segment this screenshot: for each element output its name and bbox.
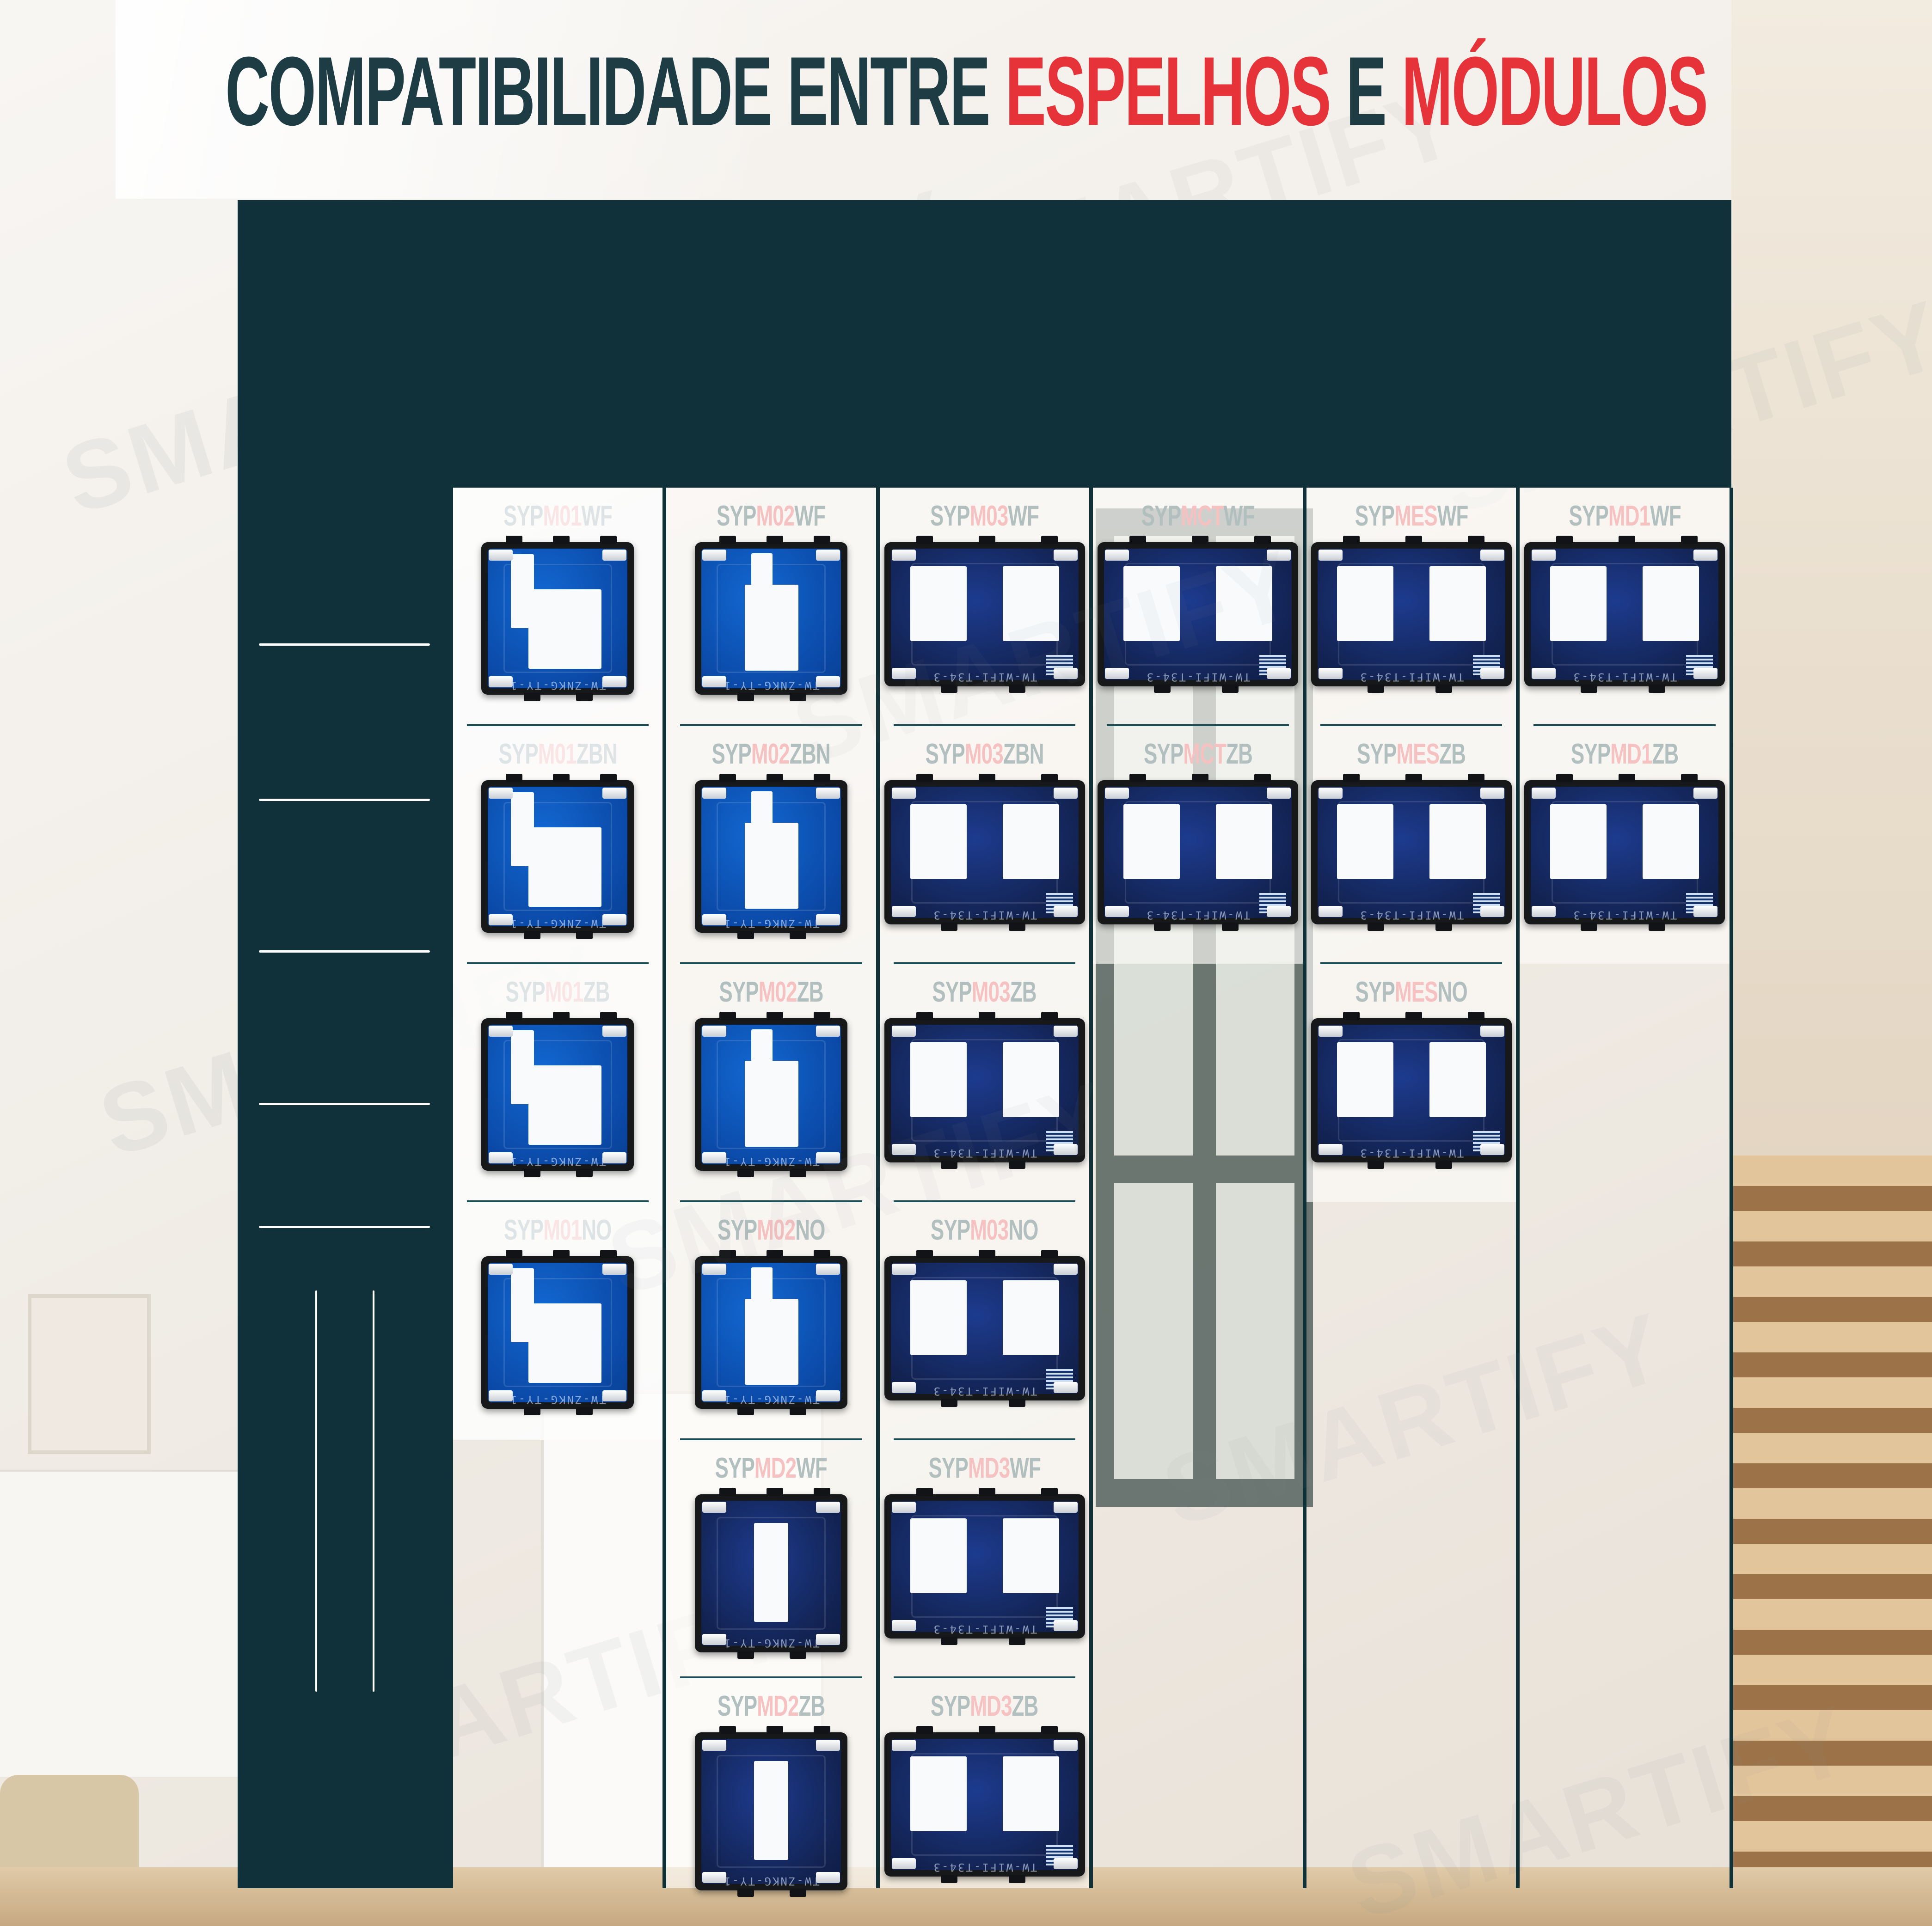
stair-step — [1731, 1266, 1932, 1322]
module-image-m1: TW-ZNKG-TY-1 — [481, 1256, 634, 1409]
stair-step — [1731, 1433, 1932, 1488]
title-part-red: ESPELHOS — [1005, 37, 1330, 146]
cell-separator — [467, 962, 649, 964]
cell-separator — [467, 724, 649, 726]
sidebar-panel — [238, 488, 451, 1888]
module-image-md2: TW-ZNKG-TY-1 — [695, 1732, 847, 1890]
cell-separator — [680, 962, 862, 964]
column-divider-line — [1730, 488, 1733, 1888]
page-title: COMPATIBILIDADE ENTRE ESPELHOS E MÓDULOS — [0, 50, 1932, 134]
grid-divider — [315, 1290, 317, 1692]
cell-separator — [467, 1200, 649, 1202]
column-divider-line — [1303, 488, 1306, 1888]
sidebar-separator — [259, 950, 430, 953]
module-image-m1: TW-ZNKG-TY-1 — [481, 780, 634, 933]
module-image-md2: TW-ZNKG-TY-1 — [695, 1494, 847, 1652]
module-image-wide: TW-WIFI-T34-3 — [1311, 1018, 1512, 1162]
grid-divider — [373, 1290, 374, 1692]
module-image-wide: TW-WIFI-T34-3 — [1098, 780, 1298, 924]
stair-step — [1731, 1599, 1932, 1655]
stair-step — [1731, 1377, 1932, 1433]
module-image-wide: TW-WIFI-T34-3 — [1524, 780, 1725, 924]
background-cabinet — [0, 1470, 238, 1777]
title-part-red2: MÓDULOS — [1401, 37, 1707, 146]
cell-separator — [680, 1676, 862, 1678]
module-image-wide: TW-WIFI-T34-3 — [884, 780, 1085, 924]
stair-step — [1731, 1156, 1932, 1211]
module-image-m1: TW-ZNKG-TY-1 — [481, 542, 634, 695]
module-image-wide: TW-WIFI-T34-3 — [1524, 542, 1725, 686]
module-image-m1: TW-ZNKG-TY-1 — [481, 1018, 634, 1171]
module-image-wide: TW-WIFI-T34-3 — [884, 1256, 1085, 1400]
module-image-wide: TW-WIFI-T34-3 — [884, 1494, 1085, 1639]
stair-step — [1731, 1211, 1932, 1266]
cell-separator — [894, 1676, 1076, 1678]
stair-step — [1731, 1488, 1932, 1544]
title-part-dark: COMPATIBILIDADE ENTRE — [225, 37, 1005, 146]
cell-separator — [680, 1438, 862, 1440]
header-band — [238, 200, 1731, 488]
column-divider-line — [449, 488, 453, 1888]
column-divider-line — [662, 488, 666, 1888]
background-picture-frame — [28, 1294, 151, 1454]
title-part-dark2: E — [1330, 37, 1402, 146]
stair-step — [1731, 1322, 1932, 1377]
cell-separator — [894, 962, 1076, 964]
column-divider-line — [1516, 488, 1520, 1888]
module-image-wide: TW-WIFI-T34-3 — [1311, 780, 1512, 924]
sidebar-separator — [259, 799, 430, 801]
module-image-wide: TW-WIFI-T34-3 — [1311, 542, 1512, 686]
cell-separator — [1320, 724, 1503, 726]
stair-step — [1731, 1544, 1932, 1599]
infographic-canvas: SMARTIFYSMARTIFYSMARTIFYSMARTIFYSMARTIFY… — [0, 0, 1932, 1926]
background-wall — [1731, 0, 1932, 1248]
cell-separator — [894, 1438, 1076, 1440]
cell-separator — [1533, 724, 1716, 726]
sidebar-separator — [259, 1226, 430, 1228]
sidebar-separator — [259, 643, 430, 646]
cell-separator — [1107, 724, 1289, 726]
cell-separator — [1320, 962, 1503, 964]
module-image-m2: TW-ZNKG-TY-1 — [695, 780, 847, 933]
sidebar-separator — [259, 1103, 430, 1105]
module-image-wide: TW-WIFI-T34-3 — [884, 1732, 1085, 1877]
